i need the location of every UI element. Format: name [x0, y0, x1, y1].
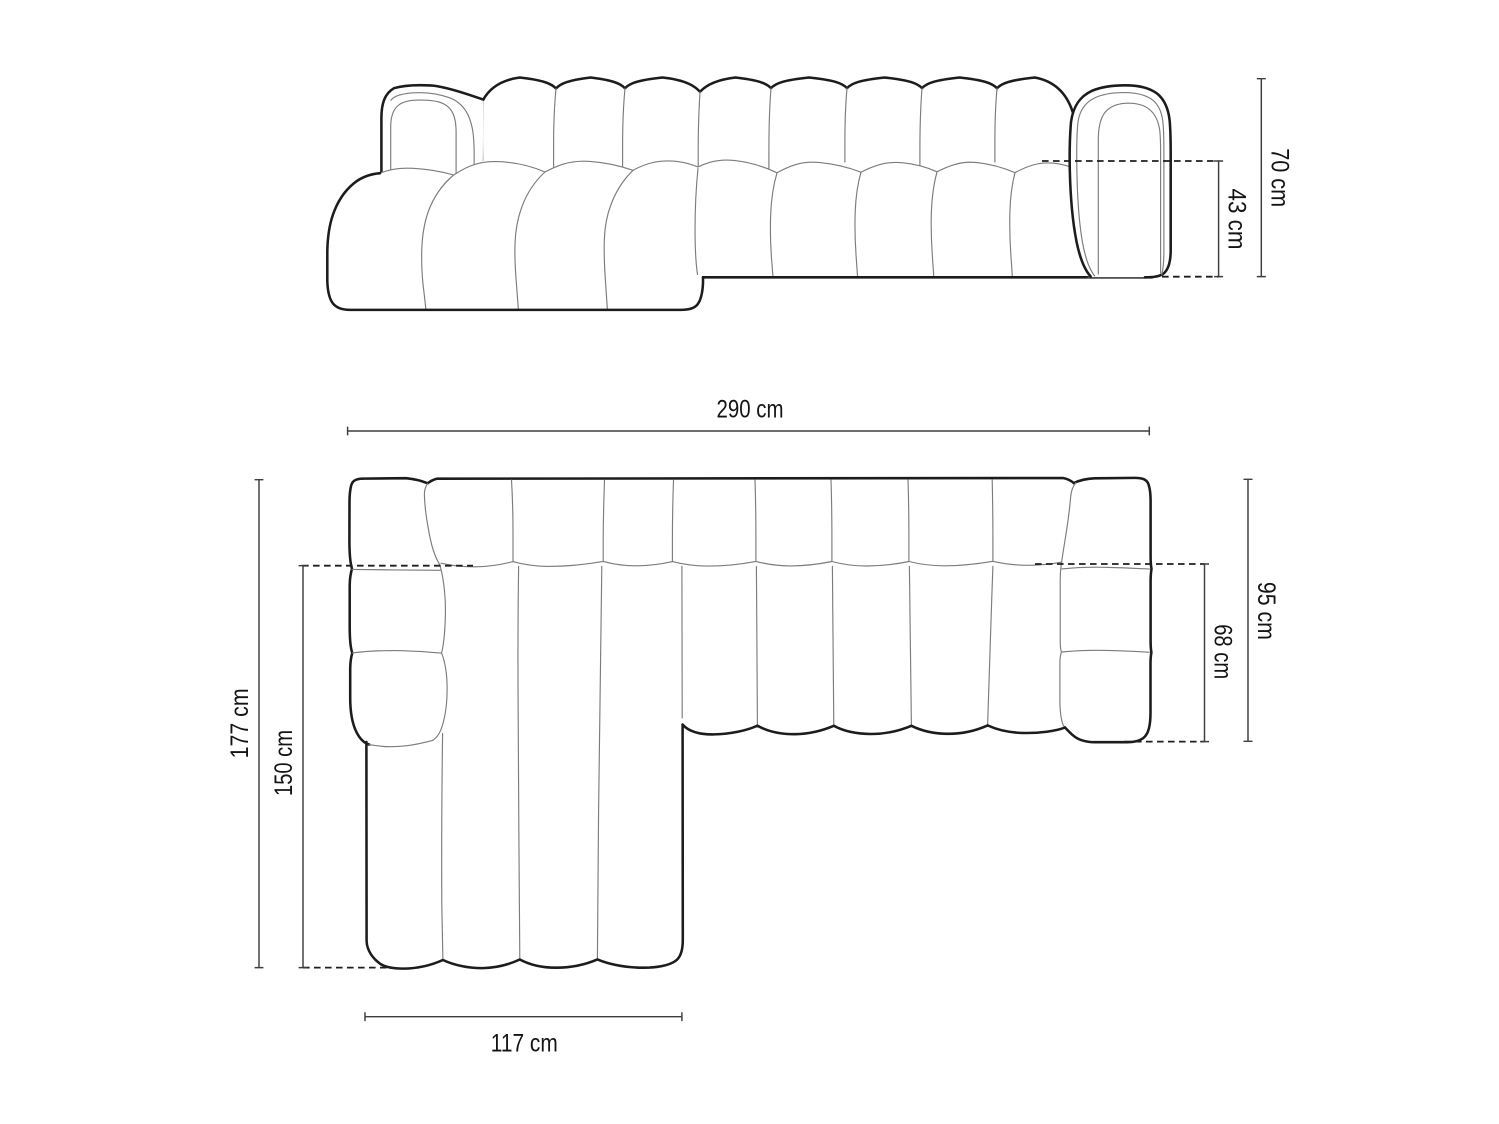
svg-text:68 cm: 68 cm [1209, 624, 1237, 679]
svg-text:70 cm: 70 cm [1265, 148, 1293, 207]
svg-text:150 cm: 150 cm [270, 730, 298, 796]
svg-text:290 cm: 290 cm [717, 396, 784, 424]
svg-text:177 cm: 177 cm [226, 688, 254, 758]
svg-text:43 cm: 43 cm [1223, 189, 1251, 250]
svg-text:95 cm: 95 cm [1252, 582, 1280, 640]
svg-text:117 cm: 117 cm [491, 1030, 558, 1058]
